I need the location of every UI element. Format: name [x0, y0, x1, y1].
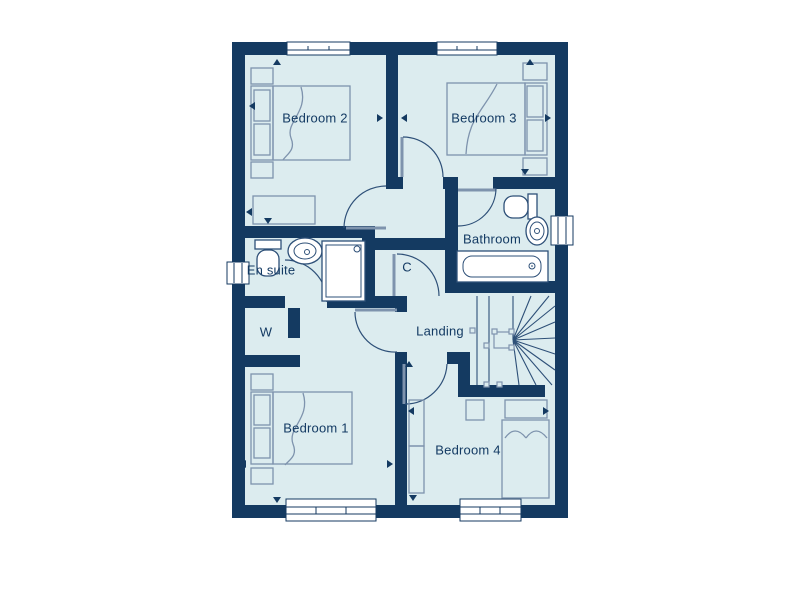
bedroom3-label: Bedroom 3: [451, 111, 516, 126]
cupboard-label: C: [402, 260, 412, 275]
window-bathroom-right: [551, 216, 573, 245]
window-bottom-left: [286, 499, 376, 521]
bedroom1-label: Bedroom 1: [283, 421, 348, 436]
bathroom-label: Bathroom: [463, 232, 521, 247]
window-bottom-right: [460, 499, 521, 521]
window-ensuite-left: [227, 262, 249, 284]
window-top-right: [437, 42, 497, 55]
bathroom-toilet-icon: [504, 194, 537, 219]
bedroom2-label: Bedroom 2: [282, 111, 347, 126]
bathtub-icon: [457, 251, 548, 282]
bedroom4-label: Bedroom 4: [435, 443, 500, 458]
landing-label: Landing: [416, 324, 464, 339]
ensuite-label: En suite: [247, 263, 296, 278]
floor-plan-drawing: [0, 0, 800, 600]
shower-icon: [322, 241, 365, 301]
floor-plan: Bedroom 2 Bedroom 3 Bathroom En suite C …: [0, 0, 800, 600]
wardrobe-label: W: [260, 325, 272, 340]
bathroom-sink-icon: [526, 217, 548, 245]
window-top-left: [287, 42, 350, 55]
ensuite-sink-icon: [288, 238, 322, 264]
